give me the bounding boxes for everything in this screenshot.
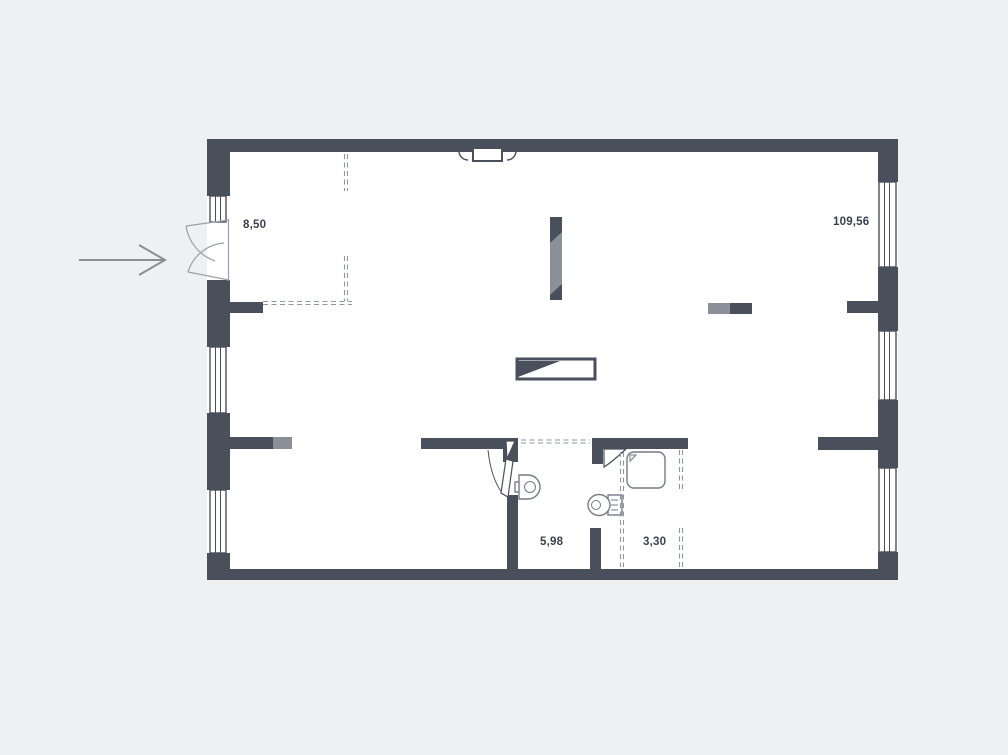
room-area-label-entry: 8,50	[243, 219, 266, 231]
floor-plan: 8,50 109,56 5,98 3,30	[0, 0, 1008, 755]
wc-wall-top	[592, 438, 688, 449]
wall-left-pier	[207, 413, 230, 490]
column	[550, 217, 562, 300]
wall-bottom	[207, 569, 898, 580]
shower-tray	[627, 452, 665, 488]
wall-stub-light-tip	[708, 303, 730, 314]
wall-top	[207, 139, 898, 152]
wc-door-post	[592, 438, 603, 464]
wall-right-corner-top	[878, 139, 898, 182]
wall-left-corner-top	[207, 139, 230, 196]
wall-stub	[818, 437, 878, 450]
floor-plan-canvas: 8,50 109,56 5,98 3,30	[0, 0, 1008, 755]
wall-stub	[730, 303, 752, 314]
wall-left-corner-bottom	[207, 553, 230, 580]
entrance-arrow-icon	[79, 245, 165, 275]
window	[210, 347, 226, 413]
wall-right-corner-bottom	[878, 552, 898, 580]
wall-left-pier	[207, 280, 230, 347]
room-area-label-main: 109,56	[833, 216, 869, 228]
toilet-icon	[588, 495, 622, 516]
bathroom-wall-stub	[590, 528, 601, 569]
window	[879, 182, 896, 267]
window	[879, 468, 896, 552]
sink-icon	[515, 475, 540, 499]
wall-stub	[847, 301, 878, 313]
room-area-label-wc: 3,30	[643, 536, 666, 548]
window	[210, 490, 226, 553]
wall-stub-light-tip	[273, 437, 292, 449]
wall-right-pier	[878, 267, 898, 331]
window	[879, 331, 896, 400]
wall-right-pier	[878, 400, 898, 468]
wall-stub	[230, 437, 273, 449]
windows-right	[879, 182, 896, 552]
bathroom-wall-top	[421, 438, 507, 449]
counter-symbol	[517, 359, 595, 379]
wall-stub	[230, 302, 263, 313]
room-area-label-bathroom: 5,98	[540, 536, 564, 548]
bathroom-wall-left	[507, 495, 518, 569]
window	[210, 196, 226, 222]
